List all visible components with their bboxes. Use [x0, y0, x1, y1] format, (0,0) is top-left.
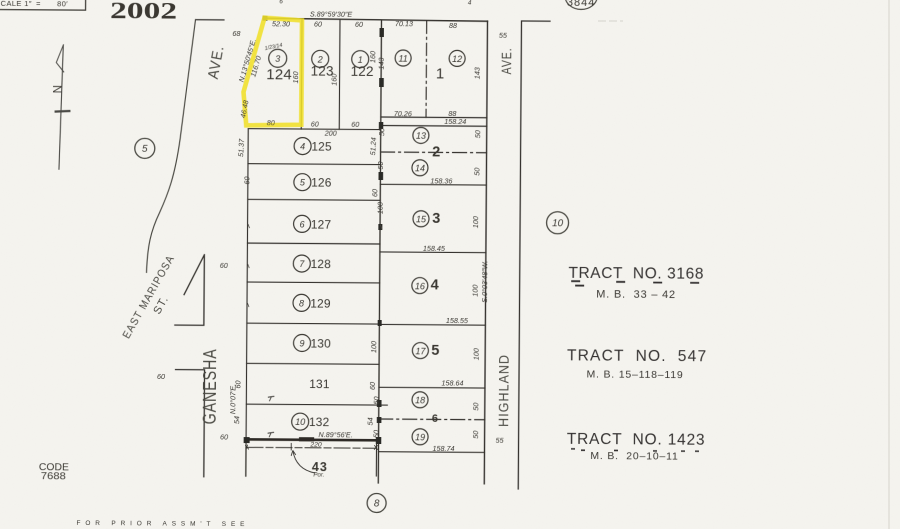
svg-text:60: 60: [368, 382, 377, 390]
svg-text:60: 60: [157, 372, 165, 381]
svg-text:11: 11: [398, 54, 407, 64]
svg-text:50: 50: [471, 403, 480, 411]
svg-text:6: 6: [279, 0, 283, 5]
svg-text:S.0°03′48″W.: S.0°03′48″W.: [480, 261, 489, 303]
svg-text:4: 4: [468, 0, 472, 7]
svg-text:N: N: [52, 85, 64, 93]
svg-text:50: 50: [372, 430, 381, 438]
svg-text:158.64: 158.64: [441, 378, 463, 387]
svg-text:128: 128: [310, 257, 331, 271]
svg-text:3: 3: [275, 54, 280, 64]
svg-text:50: 50: [471, 431, 480, 439]
svg-text:12: 12: [452, 54, 462, 64]
svg-text:70.26: 70.26: [394, 109, 412, 118]
svg-text:158.55: 158.55: [446, 316, 469, 325]
svg-text:51.37: 51.37: [236, 138, 246, 157]
svg-text:88: 88: [449, 21, 457, 30]
svg-text:100: 100: [471, 216, 480, 228]
svg-text:200: 200: [324, 129, 337, 138]
svg-text:60: 60: [242, 177, 251, 185]
svg-text:158.45: 158.45: [423, 244, 446, 253]
svg-text:M. B. 20–10–11: M. B. 20–10–11: [590, 450, 678, 463]
svg-text:N.89°56′E.: N.89°56′E.: [318, 430, 352, 439]
svg-text:55: 55: [499, 31, 508, 40]
svg-text:54: 54: [366, 417, 375, 425]
svg-text:AVE.: AVE.: [498, 47, 514, 74]
svg-text:127: 127: [311, 218, 332, 232]
svg-text:18: 18: [415, 395, 425, 405]
svg-text:131: 131: [309, 377, 330, 391]
svg-text:GANESHA: GANESHA: [200, 348, 221, 424]
svg-text:16: 16: [415, 281, 425, 291]
svg-text:60: 60: [355, 20, 363, 29]
svg-text:124: 124: [266, 66, 292, 83]
svg-text:60: 60: [351, 120, 359, 129]
svg-text:50: 50: [372, 396, 381, 404]
svg-text:S.89°59′30″E: S.89°59′30″E: [310, 10, 353, 19]
svg-text:60: 60: [311, 120, 319, 129]
svg-text:100: 100: [472, 348, 481, 360]
svg-text:143: 143: [473, 67, 482, 79]
svg-text:158.24: 158.24: [444, 117, 466, 126]
svg-text:100: 100: [471, 285, 480, 297]
svg-text:4: 4: [300, 142, 305, 152]
svg-text:60: 60: [370, 189, 379, 197]
svg-text:132: 132: [309, 415, 330, 429]
svg-text:70.13: 70.13: [395, 19, 413, 28]
svg-text:80′: 80′: [57, 0, 68, 9]
svg-text:100: 100: [369, 341, 378, 353]
svg-text:158.74: 158.74: [432, 444, 454, 453]
svg-text:50: 50: [376, 161, 385, 169]
svg-text:5: 5: [142, 144, 148, 155]
svg-text:160: 160: [291, 71, 300, 83]
svg-text:50: 50: [377, 128, 386, 136]
svg-text:7688: 7688: [41, 470, 66, 482]
svg-text:HIGHLAND: HIGHLAND: [496, 354, 512, 427]
svg-text:10: 10: [552, 218, 564, 229]
svg-text:10: 10: [295, 417, 305, 427]
svg-text:1: 1: [436, 65, 445, 82]
svg-text:14: 14: [415, 163, 425, 173]
svg-text:125: 125: [311, 140, 332, 154]
svg-text:220: 220: [309, 441, 322, 448]
svg-text:13: 13: [416, 131, 426, 141]
svg-text:6: 6: [432, 413, 439, 425]
svg-text:50: 50: [473, 130, 482, 138]
svg-text:60: 60: [220, 261, 228, 270]
svg-text:TRACT NO. 1423: TRACT NO. 1423: [567, 431, 706, 449]
svg-text:143: 143: [377, 57, 386, 69]
svg-text:51.24: 51.24: [368, 137, 378, 156]
svg-text:6: 6: [300, 219, 305, 229]
svg-text:60: 60: [220, 432, 228, 441]
svg-text:122: 122: [351, 64, 374, 79]
svg-text:129: 129: [310, 296, 331, 310]
svg-text:N.0°07′E.: N.0°07′E.: [228, 384, 237, 414]
svg-text:19: 19: [415, 432, 425, 442]
svg-text:4: 4: [431, 277, 440, 293]
svg-text:60: 60: [314, 20, 322, 29]
svg-text:9: 9: [299, 338, 304, 348]
svg-text:8: 8: [374, 498, 380, 509]
svg-text:8: 8: [299, 298, 304, 308]
svg-text:=: =: [36, 0, 41, 8]
svg-text:TRACT NO. 3168: TRACT NO. 3168: [568, 265, 704, 283]
svg-text:CALE 1″: CALE 1″: [1, 0, 32, 8]
svg-text:15: 15: [416, 214, 427, 224]
svg-text:130: 130: [310, 337, 331, 351]
svg-text:2002: 2002: [110, 0, 177, 24]
svg-text:52.30: 52.30: [272, 19, 290, 28]
svg-text:50: 50: [472, 168, 481, 176]
svg-text:TRACT NO. 547: TRACT NO. 547: [567, 347, 707, 365]
svg-text:17: 17: [415, 346, 426, 356]
svg-text:68: 68: [232, 29, 240, 38]
svg-text:3844: 3844: [567, 0, 596, 9]
svg-text:M. B. 15–118–119: M. B. 15–118–119: [586, 368, 683, 381]
svg-text:80: 80: [267, 118, 275, 127]
svg-text:54: 54: [232, 416, 241, 424]
svg-text:3: 3: [432, 211, 441, 227]
svg-text:126: 126: [311, 176, 332, 190]
svg-text:158.36: 158.36: [430, 176, 452, 185]
svg-text:100: 100: [376, 202, 385, 214]
svg-text:M. B. 33 – 42: M. B. 33 – 42: [596, 289, 676, 302]
svg-text:2: 2: [432, 144, 441, 160]
svg-text:160: 160: [330, 74, 339, 86]
svg-text:5: 5: [431, 343, 440, 359]
svg-text:55: 55: [496, 436, 505, 445]
